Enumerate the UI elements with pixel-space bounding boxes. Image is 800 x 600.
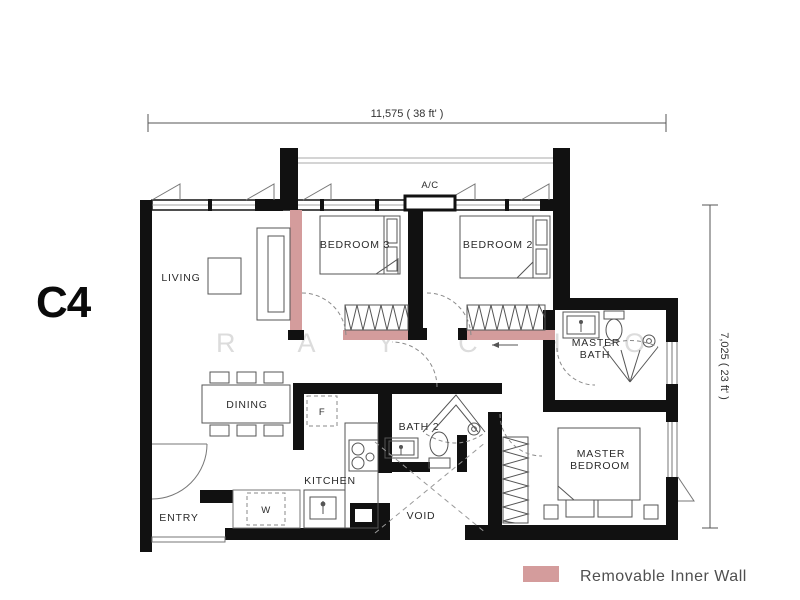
kitchen-bath-top-wall — [293, 383, 502, 394]
left-outer-wall — [140, 200, 152, 552]
master-bed-icon — [544, 428, 658, 519]
bedroom-divider-wall — [408, 210, 423, 340]
master-bath-top-wall — [553, 298, 678, 310]
kitchen-bath-divider-wall — [378, 383, 392, 473]
master-bedroom-area: MASTER BEDROOM — [500, 414, 694, 523]
floorplan-svg: R A Y C H O 11,575 ( 38 ft' ) 7,025 ( 23… — [0, 0, 800, 600]
master-wardrobe-icon — [503, 437, 528, 523]
bedroom3-label: BEDROOM 3 — [320, 239, 390, 251]
wardrobe2-icon — [467, 305, 545, 330]
washer-label: W — [261, 505, 270, 516]
bath2-bottom-wall — [392, 462, 430, 472]
fridge-icon: F — [307, 396, 337, 426]
legend-swatch — [523, 566, 559, 582]
unit-label: C4 — [36, 278, 92, 327]
entry-threshold — [152, 537, 225, 542]
right-dimension: 7,025 ( 23 ft' ) — [702, 205, 730, 528]
master-bedroom-label-2: BEDROOM — [570, 460, 630, 472]
kitchen-label: KITCHEN — [304, 475, 356, 487]
stove-icon — [349, 440, 378, 471]
washer-closet: W — [233, 490, 300, 528]
right-dimension-label: 7,025 ( 23 ft' ) — [718, 332, 730, 400]
dining-area: DINING — [202, 372, 290, 436]
coffee-table-icon — [208, 258, 241, 294]
kitchen-sink-icon — [304, 490, 345, 528]
master-bath-sink-icon — [563, 312, 599, 338]
bedroom2: BEDROOM 2 — [427, 216, 550, 337]
dining-label: DINING — [226, 399, 268, 411]
floorplan-page: R A Y C H O 11,575 ( 38 ft' ) 7,025 ( 23… — [0, 0, 800, 600]
bath2-right-wall — [457, 435, 467, 472]
sofa-icon — [257, 228, 290, 320]
master-bath-label-1: MASTER — [572, 337, 621, 349]
entry-door-arc — [152, 444, 207, 499]
ac-ledge — [298, 158, 553, 163]
living-room: LIVING — [161, 228, 290, 320]
master-bedroom-label-1: MASTER — [577, 448, 626, 460]
master-bedroom-top-wall — [543, 400, 666, 412]
right-wall-mid — [666, 384, 678, 402]
top-dimension: 11,575 ( 38 ft' ) — [148, 108, 666, 132]
removable-wall-bed2 — [467, 330, 555, 340]
bath2-toilet-icon — [429, 432, 450, 468]
kitchen-left-wall — [293, 383, 304, 450]
entry-label: ENTRY — [159, 512, 198, 524]
kitchen-corner-notch — [355, 509, 372, 522]
fridge-label: F — [319, 407, 325, 418]
bedroom2-right-wall — [553, 210, 570, 298]
bath2-area: BATH 2 — [385, 342, 485, 468]
column-top-right — [553, 148, 570, 210]
bedroom3: BEDROOM 3 — [302, 216, 408, 337]
bedroom2-label: BEDROOM 2 — [463, 239, 533, 251]
void-label: VOID — [407, 510, 436, 522]
right-wall-corner — [666, 400, 678, 422]
column-top-left — [280, 148, 298, 210]
right-wall-upper — [666, 310, 678, 342]
wardrobe3-icon — [345, 305, 408, 330]
ac-label: A/C — [421, 180, 438, 191]
bottom-wall-right — [465, 525, 678, 540]
legend-label: Removable Inner Wall — [580, 568, 747, 585]
void-area: VOID — [375, 442, 486, 533]
bedroom-divider-foot — [408, 328, 427, 340]
legend: Removable Inner Wall — [523, 566, 747, 585]
top-window-band — [152, 199, 553, 211]
master-bedroom-left-wall — [488, 412, 502, 525]
top-dimension-label: 11,575 ( 38 ft' ) — [371, 108, 444, 120]
ac-unit: A/C — [405, 180, 455, 210]
casement-window-icons — [152, 184, 549, 200]
master-bath-label-2: BATH — [580, 349, 610, 361]
removable-wall-living-bed3 — [290, 210, 302, 340]
entry-step-wall — [200, 490, 233, 503]
living-label: LIVING — [161, 272, 200, 284]
window-swing-icon — [678, 477, 694, 501]
removable-wall-bed3 — [343, 330, 408, 340]
